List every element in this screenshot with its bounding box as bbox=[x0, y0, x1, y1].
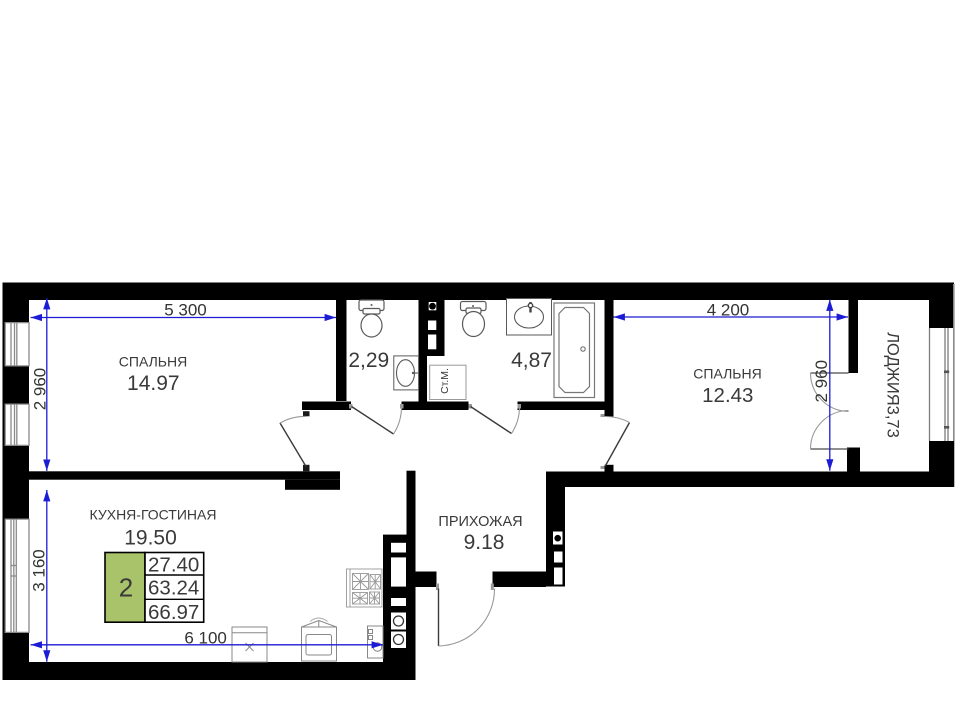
svg-text:ЛОДЖИЯ3,73: ЛОДЖИЯ3,73 bbox=[884, 332, 902, 438]
svg-text:КУХНЯ-ГОСТИНАЯ: КУХНЯ-ГОСТИНАЯ bbox=[90, 507, 217, 523]
svg-text:2: 2 bbox=[119, 572, 133, 602]
svg-text:4 200: 4 200 bbox=[707, 301, 750, 320]
svg-text:14.97: 14.97 bbox=[127, 372, 180, 395]
svg-text:66.97: 66.97 bbox=[148, 601, 199, 624]
svg-text:2,29: 2,29 bbox=[348, 349, 389, 372]
svg-text:2 960: 2 960 bbox=[812, 360, 831, 403]
svg-text:3 160: 3 160 bbox=[30, 549, 49, 592]
svg-text:63.24: 63.24 bbox=[148, 577, 199, 600]
svg-text:4,87: 4,87 bbox=[511, 349, 552, 372]
svg-text:12.43: 12.43 bbox=[702, 384, 753, 407]
svg-text:9.18: 9.18 bbox=[464, 531, 505, 554]
svg-text:19.50: 19.50 bbox=[124, 527, 177, 550]
svg-text:5 300: 5 300 bbox=[164, 301, 207, 320]
svg-text:СПАЛЬНЯ: СПАЛЬНЯ bbox=[119, 354, 187, 370]
svg-text:2 960: 2 960 bbox=[31, 368, 50, 411]
svg-text:Ст.М.: Ст.М. bbox=[439, 368, 451, 394]
svg-text:ПРИХОЖАЯ: ПРИХОЖАЯ bbox=[438, 514, 522, 530]
svg-text:6 100: 6 100 bbox=[184, 629, 227, 648]
svg-text:27.40: 27.40 bbox=[148, 553, 199, 576]
svg-text:СПАЛЬНЯ: СПАЛЬНЯ bbox=[693, 365, 761, 381]
